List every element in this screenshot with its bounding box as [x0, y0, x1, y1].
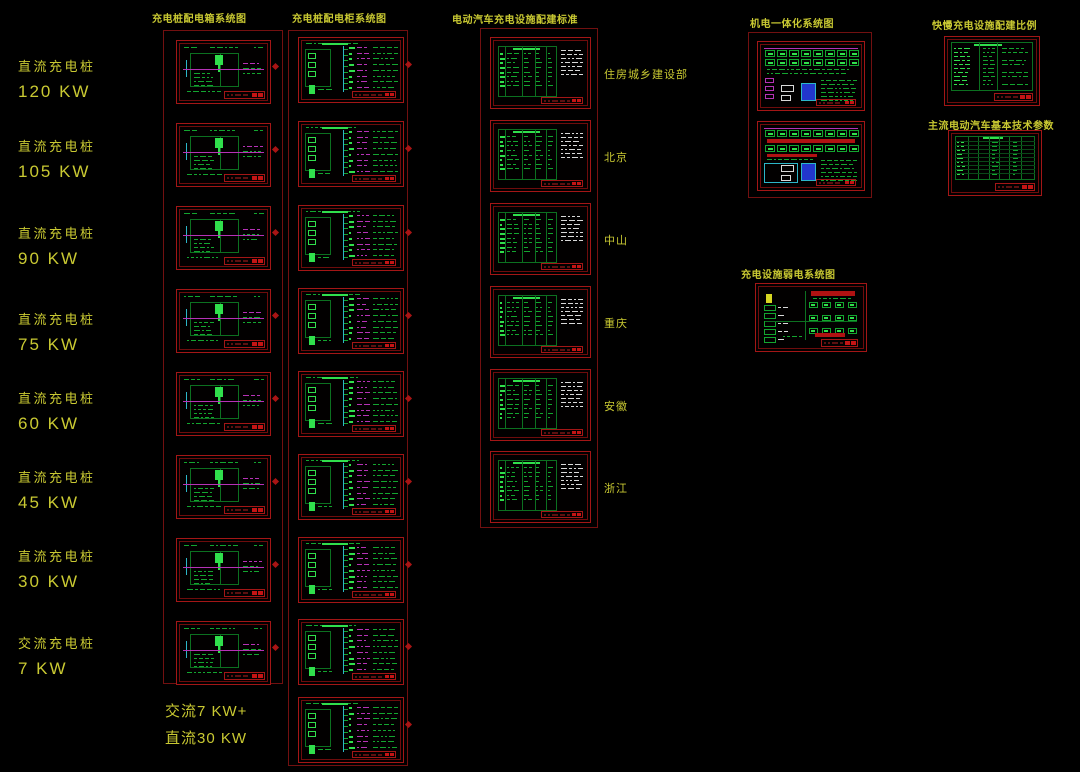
text-dash: [529, 242, 532, 243]
text-dash: [846, 160, 851, 161]
text-dash: [383, 53, 385, 54]
text-dash: [548, 467, 553, 468]
panel-col1-2[interactable]: [176, 123, 271, 187]
title-block-mark: [572, 99, 576, 102]
text-dash: [205, 506, 208, 507]
text-dash: [959, 64, 963, 65]
charger-label: 交流充电桩7 KW: [18, 633, 96, 679]
feeder-tap: [344, 257, 348, 258]
text-dash: [247, 234, 250, 235]
text-dash: [243, 405, 245, 406]
feeder-tap: [344, 83, 348, 84]
text-dash: [827, 69, 832, 70]
text-dash: [561, 468, 567, 469]
diagram-box: [789, 59, 799, 66]
text-dash: [987, 84, 989, 85]
text-dash: [251, 649, 256, 650]
diagram-box: [789, 145, 799, 152]
panel-col2-6[interactable]: [298, 454, 404, 520]
text-dash: [574, 299, 576, 300]
table-gridline: [505, 460, 506, 511]
table-gridline: [522, 46, 523, 97]
device-dash: [804, 133, 809, 135]
title-block-mark: [572, 182, 576, 185]
text-dash: [1006, 186, 1012, 188]
marker-diamond: [272, 146, 279, 153]
panel-col2-3[interactable]: [298, 205, 404, 271]
text-dash: [524, 224, 527, 225]
text-dash: [193, 506, 195, 507]
text-dash: [568, 398, 574, 399]
device-dash: [811, 330, 815, 332]
text-dash: [373, 298, 378, 299]
text-dash: [199, 174, 201, 175]
text-dash: [318, 543, 321, 544]
diagram-box: [835, 302, 844, 308]
text-dash: [524, 228, 526, 229]
text-dash: [996, 162, 999, 163]
text-dash: [954, 60, 960, 61]
text-dash: [254, 379, 259, 380]
panel-frame: [301, 291, 401, 351]
text-dash: [515, 168, 519, 169]
text-dash: [381, 309, 383, 310]
panel-col1-1[interactable]: [176, 40, 271, 104]
panel-col2-2[interactable]: [298, 121, 404, 187]
title-block: [224, 91, 265, 99]
text-dash: [387, 298, 389, 299]
table-gridline: [546, 295, 547, 346]
text-dash: [210, 662, 213, 663]
text-dash: [206, 662, 208, 663]
text-dash: [233, 628, 235, 629]
text-dash: [568, 228, 571, 229]
text-dash: [960, 68, 965, 69]
text-dash: [853, 80, 857, 81]
text-dash: [259, 545, 263, 546]
text-dash: [380, 635, 386, 636]
charger-power-label: 120 KW: [18, 82, 96, 102]
panel-col3-2[interactable]: [490, 120, 591, 192]
text-dash: [524, 417, 528, 418]
text-dash: [357, 669, 362, 670]
title-block-mark: [845, 181, 849, 184]
text-dash: [513, 394, 519, 395]
text-dash: [567, 514, 570, 516]
text-dash: [548, 136, 553, 137]
text-dash: [362, 76, 367, 77]
feeder-tap: [344, 223, 348, 224]
panel-col2-5[interactable]: [298, 371, 404, 437]
feeder-tap: [344, 139, 348, 140]
text-dash: [507, 72, 511, 73]
text-dash: [355, 511, 357, 513]
text-dash: [329, 589, 332, 590]
text-dash: [365, 646, 370, 647]
text-dash: [500, 62, 503, 64]
text-dash: [386, 381, 389, 382]
text-dash: [371, 428, 376, 430]
text-dash: [391, 558, 397, 559]
text-dash: [349, 165, 351, 167]
text-dash: [572, 216, 575, 217]
panel-weak[interactable]: [755, 283, 867, 352]
text-dash: [362, 570, 365, 571]
panel-col3-5[interactable]: [490, 369, 591, 441]
text-dash: [561, 220, 567, 221]
text-dash: [373, 232, 376, 233]
title-block-mark: [390, 177, 394, 180]
text-dash: [216, 506, 221, 507]
text-dash: [202, 160, 208, 161]
text-dash: [208, 156, 212, 157]
group-border-col1: [163, 30, 283, 684]
text-dash: [515, 81, 519, 82]
text-dash: [357, 629, 363, 630]
text-dash: [1019, 76, 1021, 77]
text-dash: [204, 243, 210, 244]
text-dash: [839, 88, 841, 89]
device-dash: [850, 330, 854, 332]
feeder-tap: [344, 133, 348, 134]
text-dash: [359, 676, 361, 678]
text-dash: [223, 213, 227, 214]
text-dash: [536, 242, 542, 243]
text-dash: [507, 307, 510, 308]
feeder-tap: [344, 648, 348, 649]
text-dash: [841, 73, 846, 74]
text-dash: [257, 73, 261, 74]
text-dash: [579, 74, 583, 75]
text-dash: [388, 747, 390, 748]
feeder-tap: [344, 749, 348, 750]
title-block: [541, 429, 583, 436]
panel-col3-1[interactable]: [490, 37, 591, 109]
text-dash: [500, 247, 505, 249]
table-gridline: [979, 42, 980, 91]
title-block: [995, 183, 1035, 191]
text-dash: [377, 76, 381, 77]
text-dash: [201, 91, 206, 92]
text-dash: [849, 164, 853, 165]
text-dash: [380, 315, 386, 316]
text-dash: [210, 488, 214, 489]
panel-params[interactable]: [948, 130, 1042, 196]
text-dash: [197, 379, 200, 380]
text-dash: [257, 405, 259, 406]
feeder-tap: [344, 726, 348, 727]
text-dash: [208, 168, 212, 169]
text-dash: [349, 160, 353, 162]
diagram-box: [848, 328, 857, 334]
text-dash: [536, 302, 541, 303]
text-dash: [383, 232, 385, 233]
text-dash: [561, 50, 566, 51]
device-dash: [840, 62, 845, 64]
text-dash: [188, 296, 193, 297]
diagram-box: [308, 479, 316, 485]
title-block: [352, 342, 396, 349]
text-dash: [194, 417, 199, 418]
text-dash: [349, 70, 355, 72]
text-dash: [960, 52, 962, 53]
text-dash: [357, 304, 360, 305]
text-dash: [349, 238, 352, 240]
panel-col2-8[interactable]: [298, 619, 404, 685]
panel-col1-3[interactable]: [176, 206, 271, 270]
marker-diamond: [405, 145, 412, 152]
text-dash: [227, 130, 230, 131]
text-dash: [395, 415, 398, 416]
text-dash: [258, 322, 261, 323]
combo-label-line2: 直流30 KW: [165, 725, 247, 752]
text-dash: [349, 669, 353, 671]
title-block-mark: [850, 181, 854, 184]
text-dash: [210, 545, 214, 546]
text-dash: [529, 155, 532, 156]
diagram-box: [825, 50, 835, 57]
text-dash: [511, 58, 517, 59]
text-dash: [573, 240, 577, 241]
text-dash: [357, 640, 362, 641]
text-dash: [349, 87, 352, 89]
controller-box: [801, 83, 816, 101]
text-dash: [353, 43, 358, 44]
text-dash: [373, 387, 377, 388]
text-dash: [386, 321, 391, 322]
text-dash: [391, 547, 395, 548]
text-dash: [548, 150, 550, 151]
text-dash: [524, 399, 530, 400]
text-dash: [507, 330, 510, 331]
feeder-tap: [344, 549, 348, 550]
text-dash: [775, 73, 780, 74]
panel-ratio[interactable]: [944, 36, 1040, 106]
text-dash: [254, 462, 256, 463]
text-dash: [349, 255, 355, 257]
text-dash: [513, 238, 515, 239]
text-dash: [507, 159, 513, 160]
text-dash: [778, 323, 781, 324]
text-dash: [365, 171, 370, 172]
text-dash: [243, 177, 248, 179]
diagram-box: [813, 130, 823, 137]
marker-diamond: [272, 395, 279, 402]
text-dash: [235, 462, 238, 463]
text-dash: [367, 730, 369, 731]
text-dash: [992, 166, 998, 167]
text-dash: [207, 85, 213, 86]
text-dash: [388, 635, 394, 636]
panel-col1-8[interactable]: [176, 621, 271, 685]
text-dash: [500, 145, 504, 147]
text-dash: [357, 160, 362, 161]
text-dash: [354, 127, 356, 128]
text-dash: [381, 718, 383, 719]
text-dash: [208, 413, 212, 414]
diagram-box: [308, 387, 316, 393]
panel-col1-5[interactable]: [176, 372, 271, 436]
text-dash: [353, 703, 358, 704]
text-dash: [373, 730, 376, 731]
text-dash: [362, 487, 368, 488]
diagram-box: [809, 302, 818, 308]
diagram-box: [849, 145, 859, 152]
text-dash: [210, 47, 215, 48]
text-dash: [576, 398, 580, 399]
text-dash: [357, 652, 363, 653]
diagram-box: [813, 59, 823, 66]
panel-col2-9[interactable]: [298, 697, 404, 763]
text-dash: [365, 629, 369, 630]
text-dash: [364, 640, 366, 641]
text-dash: [500, 81, 504, 83]
text-dash: [835, 96, 838, 97]
text-dash: [394, 81, 398, 82]
text-dash: [359, 178, 361, 180]
panel-col1-6[interactable]: [176, 455, 271, 519]
text-dash: [954, 56, 958, 57]
text-dash: [196, 257, 198, 258]
text-dash: [992, 158, 995, 159]
title-block-mark: [577, 513, 581, 516]
region-label-5: 安徽: [604, 398, 628, 414]
text-dash: [243, 395, 249, 396]
text-dash: [224, 379, 226, 380]
text-dash: [392, 215, 394, 216]
text-dash: [544, 432, 546, 434]
title-block: [541, 180, 583, 187]
diagram-box: [764, 313, 776, 319]
text-dash: [194, 160, 200, 161]
text-dash: [243, 260, 248, 262]
text-dash: [352, 460, 355, 461]
text-dash: [383, 640, 389, 641]
text-dash: [377, 131, 380, 132]
text-dash: [390, 148, 396, 149]
text-dash: [548, 481, 551, 482]
panel-mech-1[interactable]: [757, 41, 865, 111]
panel-col2-1[interactable]: [298, 37, 404, 103]
text-dash: [203, 672, 205, 673]
text-dash: [524, 238, 527, 239]
text-dash: [217, 213, 221, 214]
text-dash: [580, 311, 583, 312]
text-dash: [778, 315, 784, 316]
text-dash: [536, 164, 542, 165]
device-dash: [837, 304, 841, 306]
text-dash: [983, 48, 986, 49]
text-dash: [204, 413, 206, 414]
text-dash: [569, 232, 574, 233]
header-bar: [322, 294, 348, 296]
text-dash: [211, 247, 214, 248]
text-dash: [565, 382, 571, 383]
text-dash: [204, 322, 208, 323]
panel-col3-6[interactable]: [490, 451, 591, 523]
text-dash: [201, 326, 206, 327]
text-dash: [349, 327, 353, 329]
diagram-box: [308, 562, 316, 568]
diagram-box: [308, 304, 316, 310]
text-dash: [373, 652, 377, 653]
text-dash: [253, 400, 256, 401]
panel-col3-3[interactable]: [490, 203, 591, 275]
text-dash: [187, 340, 189, 341]
title-block: [816, 99, 856, 106]
text-dash: [349, 81, 353, 83]
text-dash: [363, 381, 365, 382]
text-dash: [573, 402, 577, 403]
text-dash: [373, 570, 375, 571]
text-dash: [251, 644, 255, 645]
panel-col2-7[interactable]: [298, 537, 404, 603]
text-dash: [568, 386, 571, 387]
text-dash: [540, 334, 543, 335]
text-dash: [187, 672, 192, 673]
text-dash: [821, 84, 827, 85]
text-dash: [366, 154, 370, 155]
device-dash: [840, 53, 845, 55]
text-dash: [507, 334, 509, 335]
text-dash: [306, 43, 312, 44]
text-dash: [571, 74, 577, 75]
text-dash: [373, 148, 376, 149]
text-dash: [357, 498, 363, 499]
panel-col1-4[interactable]: [176, 289, 271, 353]
text-dash: [184, 213, 190, 214]
text-dash: [548, 307, 550, 308]
text-dash: [357, 587, 361, 588]
title-block-mark: [1020, 95, 1025, 99]
text-dash: [313, 377, 315, 378]
panel-col2-4[interactable]: [298, 288, 404, 354]
text-dash: [536, 247, 541, 248]
panel-col1-7[interactable]: [176, 538, 271, 602]
text-dash: [363, 232, 368, 233]
text-dash: [572, 153, 575, 154]
text-dash: [393, 730, 395, 731]
text-dash: [513, 72, 519, 73]
text-dash: [373, 255, 377, 256]
text-dash: [364, 581, 366, 582]
text-dash: [1002, 52, 1006, 53]
text-dash: [529, 224, 532, 225]
text-dash: [561, 70, 566, 71]
charger-power-label: 105 KW: [18, 162, 96, 182]
text-dash: [836, 92, 838, 93]
diagram-box: [764, 329, 776, 335]
text-dash: [529, 238, 532, 239]
breaker-symbol: [215, 553, 223, 563]
text-dash: [378, 221, 383, 222]
text-dash: [373, 304, 375, 305]
text-dash: [243, 561, 247, 562]
text-dash: [194, 405, 196, 406]
text-dash: [231, 509, 233, 511]
text-dash: [515, 145, 518, 146]
panel-col3-4[interactable]: [490, 286, 591, 358]
text-dash: [809, 69, 812, 70]
panel-mech-2[interactable]: [757, 121, 865, 191]
text-dash: [373, 321, 376, 322]
text-dash: [561, 58, 566, 59]
text-dash: [187, 423, 190, 424]
text-dash: [983, 56, 987, 57]
text-dash: [219, 130, 225, 131]
text-dash: [197, 506, 203, 507]
text-dash: [513, 390, 515, 391]
